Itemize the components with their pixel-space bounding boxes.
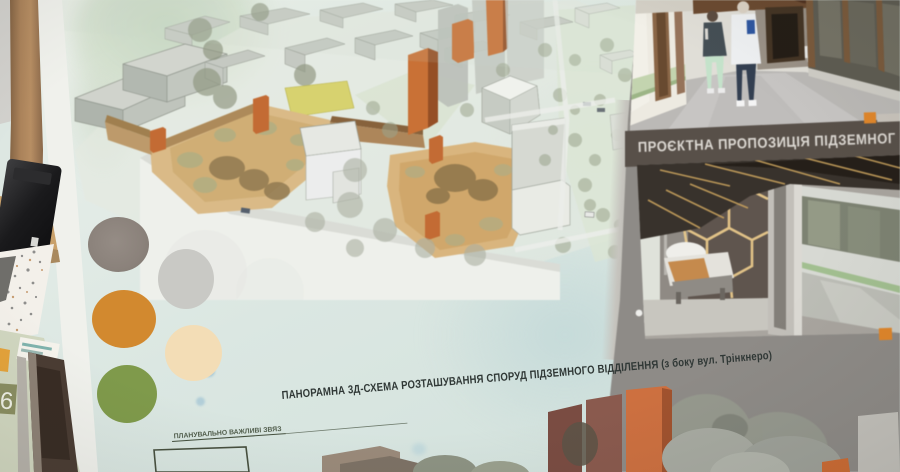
svg-text:ПЛАНУВАЛЬНО ВАЖЛИВІ ЗВЯЗ: ПЛАНУВАЛЬНО ВАЖЛИВІ ЗВЯЗ [174, 426, 283, 441]
svg-text:6: 6 [0, 387, 14, 415]
svg-text:ПАНОРАМНА 3Д-СХЕМА РОЗТАШУВАНН: ПАНОРАМНА 3Д-СХЕМА РОЗТАШУВАННЯ СПОРУД П… [281, 350, 772, 402]
